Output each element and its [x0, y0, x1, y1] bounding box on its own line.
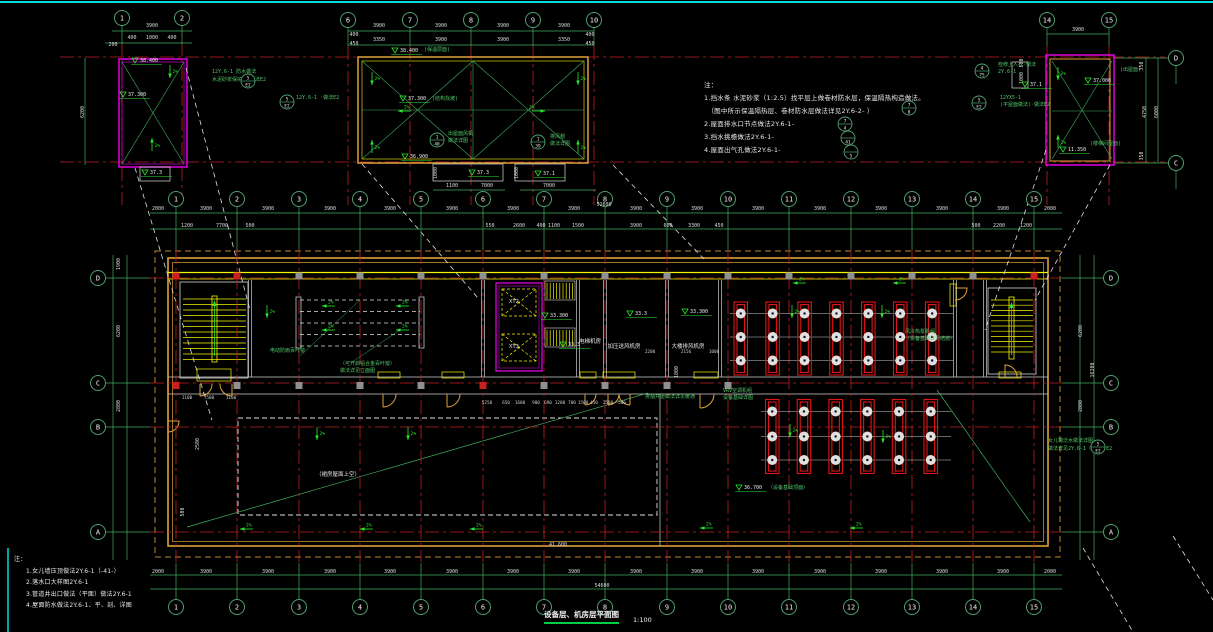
cad-text: 700	[568, 400, 576, 406]
cad-text: 3900	[200, 569, 212, 575]
detail-leader-bubble: 5E2	[972, 96, 986, 111]
cad-text: 5	[247, 76, 250, 82]
cad-text: 2%	[795, 309, 801, 315]
cad-text: 3	[297, 604, 301, 612]
cad-text: 3900	[324, 206, 336, 212]
cad-text: 2%	[411, 431, 417, 437]
slope-arrow: 2%	[790, 305, 800, 318]
slope-arrow: 2%	[396, 300, 409, 308]
note-line: 4.屋面出气孔做法2Y.6-1-	[704, 144, 925, 157]
slope-arrow: 2%	[370, 72, 380, 85]
note-line: 1.女儿墙压顶做法2Y.6-1（-41-）	[26, 566, 132, 578]
cad-text: 7000	[481, 183, 493, 189]
cad-text: E2	[1095, 449, 1101, 455]
level-triangle-icon	[736, 485, 742, 490]
column	[480, 273, 487, 280]
cad-text: 2000	[1044, 569, 1056, 575]
column	[173, 273, 180, 280]
cad-text: 2%	[799, 277, 805, 283]
cad-text: 600	[663, 223, 672, 229]
cad-text: 3900	[936, 206, 948, 212]
annotation-texts: 2000390039003900390039003900390039003900…	[80, 23, 1160, 589]
slope-arrow: 2%	[881, 430, 891, 443]
cad-text: 11	[785, 196, 793, 204]
cad-text: 37.300	[128, 92, 146, 98]
column	[357, 273, 364, 280]
cad-text: 2%	[856, 522, 862, 528]
slope-arrow: 2%	[315, 427, 325, 440]
cad-text: 1000	[514, 167, 520, 179]
cad-text: 5	[419, 196, 423, 204]
level-markers: 38.40037.30037.338.40037.30036.90037.337…	[119, 48, 1115, 492]
stair-right	[988, 288, 1036, 374]
cad-text: 3900	[497, 37, 509, 43]
door	[700, 394, 714, 408]
slope-arrow: 2%	[370, 140, 380, 153]
cad-text: 风冷热泵机组	[905, 328, 935, 335]
cad-text: XT2	[509, 299, 519, 305]
cad-text: 7	[542, 196, 546, 204]
cad-text: 7000	[543, 183, 555, 189]
cad-text: 电动防雨百叶窗	[270, 347, 305, 354]
cad-text: 1	[174, 604, 178, 612]
cad-text: 3300	[688, 223, 700, 229]
cad-text: D	[96, 275, 100, 283]
door	[383, 394, 396, 407]
level-triangle-icon	[120, 92, 126, 97]
column	[848, 273, 855, 280]
cad-text: E2	[976, 105, 982, 111]
cad-text: 3900	[1072, 27, 1084, 33]
slope-arrow: 2%	[1056, 67, 1066, 80]
cad-text: 2%	[375, 145, 381, 151]
cad-text: 4	[358, 196, 362, 204]
cad-text: 37.000	[1093, 78, 1111, 84]
cad-text: 500	[971, 223, 980, 229]
detail-leader-bubble: 5E2	[1091, 440, 1105, 455]
door	[447, 394, 460, 407]
drawing-title-block: 设备层、机房层平面图 1:100	[544, 609, 652, 624]
cad-text: 3900	[262, 206, 274, 212]
cad-text: 1200	[181, 223, 193, 229]
cad-text: 350	[1139, 151, 1145, 160]
cad-text: 15	[1105, 17, 1113, 25]
cad-text: 6200	[80, 106, 86, 118]
cad-text: 3900	[373, 23, 385, 29]
cad-text: 3900	[691, 206, 703, 212]
cad-text: 1	[174, 196, 178, 204]
cad-text: 51600	[596, 202, 611, 208]
cad-text: 7500	[204, 395, 215, 401]
slope-arrow: 2%	[360, 523, 373, 531]
cad-text: XT3	[509, 344, 519, 350]
level-triangle-icon	[400, 96, 406, 101]
cad-text: 3900	[630, 223, 642, 229]
column	[664, 273, 671, 280]
cad-text: 设备基础详图	[723, 394, 753, 401]
cad-text: 37.3	[477, 170, 489, 176]
cad-text: 4750	[1142, 106, 1148, 118]
dimension-lines	[85, 31, 1168, 589]
slope-arrow: 2%	[168, 65, 178, 78]
cad-text: 2%	[886, 434, 892, 440]
cad-text: 6	[481, 196, 485, 204]
cad-text: (出屋面)	[1120, 66, 1141, 73]
cad-text: 5	[419, 604, 423, 612]
cad-text: 400	[349, 32, 358, 38]
column	[970, 273, 977, 280]
detail-leader-bubble: 5E2	[280, 95, 294, 110]
slope-arrow: 2%	[576, 140, 586, 153]
column	[909, 273, 916, 280]
cad-text: 12	[847, 196, 855, 204]
door	[168, 421, 179, 432]
detail-mid-roof	[358, 57, 588, 181]
cad-text: 11	[785, 604, 793, 612]
level-triangle-icon	[542, 313, 548, 318]
cad-text: 2%	[899, 277, 905, 283]
cad-text: 2000	[152, 569, 164, 575]
column	[173, 382, 180, 389]
cad-text: 3900	[568, 569, 580, 575]
cad-text: 2%	[320, 431, 326, 437]
cad-text: 450	[714, 223, 723, 229]
cad-text: 2%	[402, 300, 408, 306]
cad-text: （裙房屋面上空）	[316, 470, 360, 478]
cad-text: 2%	[1061, 140, 1067, 146]
column	[664, 382, 671, 389]
cad-text: 15	[1030, 604, 1038, 612]
cad-text: 2%	[581, 145, 587, 151]
cad-text: 1	[537, 137, 540, 143]
cad-text: 16200	[1090, 362, 1096, 377]
cad-text: 7	[408, 17, 412, 25]
slope-arrow: 2%	[880, 305, 890, 318]
cad-text: 3900	[630, 206, 642, 212]
cad-text: 37.1	[543, 171, 555, 177]
cad-text: 41.600	[549, 542, 567, 548]
cad-text: E2	[245, 83, 251, 89]
slope-arrow: 2%	[396, 324, 409, 332]
cad-text: 1800	[674, 366, 680, 378]
column	[418, 382, 425, 389]
cad-text: （可开启铝合金百叶窗）	[340, 360, 395, 367]
slope-arrow: 2%	[406, 427, 416, 440]
cad-text: 500	[245, 223, 254, 229]
cad-text: 2%	[793, 428, 799, 434]
drawing-scale: 1:100	[633, 616, 652, 624]
cad-text: 3900	[630, 569, 642, 575]
column	[602, 382, 609, 389]
cad-text: 400	[167, 35, 176, 41]
cad-text: 2%	[328, 324, 334, 330]
column	[357, 382, 364, 389]
cad-text: 690	[544, 400, 552, 406]
column	[480, 382, 487, 389]
cad-text: 33.300	[550, 313, 568, 319]
cad-text: 200	[108, 42, 117, 48]
cad-text: 3900	[691, 569, 703, 575]
column	[296, 273, 303, 280]
cad-text: 500	[180, 507, 186, 516]
cad-text: 1600	[515, 400, 526, 406]
cad-text: 3900	[446, 569, 458, 575]
slope-arrow: 2%	[265, 305, 275, 318]
detail-leader-bubble: 5E2	[241, 74, 255, 89]
cad-text: 9	[665, 604, 669, 612]
cad-text: 3900	[446, 206, 458, 212]
column	[725, 273, 732, 280]
cad-text: 450	[349, 41, 358, 47]
door	[1005, 365, 1017, 377]
slope-arrow: 2%	[322, 324, 335, 332]
slope-arrow: 2%	[700, 522, 713, 530]
level-triangle-icon	[535, 171, 541, 176]
cad-text: B	[96, 424, 100, 432]
cad-text: 2%	[366, 523, 372, 529]
notes-head: 注：	[14, 554, 132, 566]
cad-text: 3	[297, 196, 301, 204]
cad-text: 3900	[435, 23, 447, 29]
cad-text: 6000	[1154, 106, 1160, 118]
cad-text: 3900	[507, 206, 519, 212]
cad-text: 3900	[262, 569, 274, 575]
cad-text: 2%	[173, 69, 179, 75]
cad-text: 6	[481, 604, 485, 612]
cad-text: 36.900	[410, 154, 428, 160]
cad-text: 2%	[328, 300, 334, 306]
cad-text: 2%	[581, 76, 587, 82]
interior-partitions	[249, 280, 987, 546]
cad-text: 3900	[814, 569, 826, 575]
note-line: （图中所示保温隔热层、卷材防水层做法详见2Y.6-2- ）	[704, 105, 925, 118]
cad-text: 9	[531, 17, 535, 25]
floor-plan-drawing: 1122334455667788991010111112121313141415…	[0, 0, 1213, 632]
cad-text: 做法详图	[448, 137, 468, 144]
cad-text: 排烟井道做法详见暖通	[645, 393, 695, 400]
cad-text: 2%	[402, 324, 408, 330]
cad-text: 37.1	[1030, 82, 1042, 88]
cad-text: 3900	[384, 569, 396, 575]
cad-text: 75	[979, 73, 985, 79]
cad-text: 大楼排风机房	[671, 342, 705, 350]
cad-text: 2600	[513, 223, 525, 229]
cad-text: 37.3	[150, 170, 162, 176]
cad-text: 6200	[116, 325, 122, 337]
slope-arrow: 2%	[470, 523, 483, 531]
cad-text: 2500	[603, 400, 614, 406]
column	[418, 273, 425, 280]
cad-text: 3900	[997, 569, 1009, 575]
cad-text: 做法详见立面图	[340, 367, 375, 374]
cad-text: 33.3	[568, 342, 580, 348]
slope-arrow: 2%	[240, 523, 253, 531]
cad-text: 7700	[216, 223, 228, 229]
note-line: 4.屋面防水做法2Y.6-1、平、剖、详图	[26, 600, 132, 612]
cad-text: E2	[284, 104, 290, 110]
equipment-units	[730, 302, 953, 474]
cad-text: 2000	[1044, 206, 1056, 212]
stair-left	[180, 282, 248, 381]
cad-text: 2	[235, 604, 239, 612]
note-line: 3.挡水挑檐做法2Y.6-1-	[704, 131, 925, 144]
cad-text: 450	[590, 400, 598, 406]
cad-text: 3900	[507, 569, 519, 575]
column	[541, 273, 548, 280]
cad-text: 2500	[195, 438, 201, 450]
cad-text: 400	[536, 223, 545, 229]
column	[234, 382, 241, 389]
column	[602, 273, 609, 280]
cad-text: 900	[532, 400, 540, 406]
cad-text: 1900	[116, 258, 122, 270]
cad-text: 3900	[324, 569, 336, 575]
cad-canvas: 1122334455667788991010111112121313141415…	[0, 0, 1213, 632]
cad-text: 做法详图	[550, 140, 570, 147]
cad-text: 6	[346, 17, 350, 25]
cad-text: 14	[969, 604, 977, 612]
cad-text: 39	[535, 144, 541, 150]
cad-text: 38.400	[400, 48, 418, 54]
slope-arrow: 2%	[150, 138, 160, 151]
cad-text: 2%	[404, 105, 410, 111]
cad-text: C	[1109, 380, 1113, 388]
cad-text: 2200	[645, 349, 656, 355]
slope-arrow: 2%	[529, 105, 545, 113]
cad-text: 500	[618, 400, 626, 406]
cad-text: 1500	[578, 400, 589, 406]
equipment-unit	[829, 400, 843, 474]
cad-text: 出屋面风机	[448, 130, 473, 137]
cad-text: D	[1174, 55, 1178, 63]
cad-text: 3900	[936, 569, 948, 575]
cad-text: 2%	[155, 143, 161, 149]
column	[1031, 273, 1038, 280]
cad-text: 2%	[375, 76, 381, 82]
cad-text: 女儿墙泛水做法详图	[1048, 437, 1093, 444]
cad-text: 加压送风机房	[607, 342, 641, 350]
cad-text: 2	[180, 15, 184, 23]
level-triangle-icon	[402, 154, 408, 159]
detail-leader-bubble: 140	[430, 133, 444, 148]
cad-text: 3900	[497, 23, 509, 29]
cad-text: 14	[1043, 17, 1051, 25]
cad-text: 1	[436, 135, 439, 141]
cad-text: 电梯机房	[579, 337, 602, 345]
cad-text: 2%	[476, 523, 482, 529]
cad-text: 3900	[558, 23, 570, 29]
level-triangle-icon	[469, 170, 475, 175]
cad-text: 36.700	[744, 485, 762, 491]
parapet-notes: 注： 1.女儿墙压顶做法2Y.6-1（-41-） 2.落水口大样图2Y.6-1 …	[14, 554, 132, 612]
cad-text: （设备基础顶面）	[768, 484, 808, 491]
cad-text: 33.3	[635, 311, 647, 317]
cad-text: 13	[908, 604, 916, 612]
cad-text: 1000	[433, 167, 439, 179]
cad-text: 3900	[997, 206, 1009, 212]
cad-text: 1200	[555, 400, 566, 406]
cad-text: 12	[847, 604, 855, 612]
column	[786, 273, 793, 280]
cad-text: 3900	[200, 206, 212, 212]
cad-text: 37.300	[408, 96, 426, 102]
equipment-unit	[924, 400, 938, 474]
cad-text: 1200	[1020, 223, 1032, 229]
cad-text: 10	[724, 196, 732, 204]
cad-text: 13	[908, 196, 916, 204]
detail-leader-bubble: 139	[531, 135, 545, 150]
cad-text: C	[1174, 160, 1178, 168]
cad-text: 2%	[270, 309, 276, 315]
column	[296, 382, 303, 389]
cad-text: 3350	[373, 37, 385, 43]
cad-text: 2%	[1061, 71, 1067, 77]
cad-text: 1100	[182, 395, 193, 401]
cad-text: 40	[434, 142, 440, 148]
cad-text: （设备基础详见结施）	[905, 335, 955, 342]
cad-text: 检修上人孔·做法	[998, 61, 1036, 68]
roof-notes: 注： 1.挡水条 水泥砂浆（1:2.5）找平层上做卷材防水层，保温隔热构造做法。…	[704, 79, 925, 157]
cad-text: VRV空调机组	[723, 387, 752, 394]
cad-text: 1000	[146, 35, 158, 41]
equipment-unit	[734, 302, 748, 375]
cad-text: B	[1109, 424, 1113, 432]
cad-text: 2%	[885, 309, 891, 315]
cad-text: 3900	[384, 206, 396, 212]
cad-text: 2%	[246, 523, 252, 529]
cad-text: 4	[981, 66, 984, 72]
cad-text: 12YX5-1	[1000, 95, 1021, 101]
cad-text: 2Y.6-1	[998, 69, 1016, 75]
cad-text: 650	[502, 400, 510, 406]
cad-text: 4	[358, 604, 362, 612]
drawing-title: 设备层、机房层平面图	[544, 609, 619, 624]
cad-text: 5	[978, 98, 981, 104]
cad-text: 1	[120, 15, 124, 23]
cad-text: 2800	[116, 400, 122, 412]
cad-text: 5	[286, 97, 289, 103]
note-line: 2.屋面排水口节点做法2Y.6-1-	[704, 118, 925, 131]
level-triangle-icon	[142, 170, 148, 175]
equipment-unit	[766, 400, 780, 474]
cad-text: 2000	[152, 206, 164, 212]
cad-text: 1100	[548, 223, 560, 229]
cad-text: 3900	[752, 206, 764, 212]
column	[541, 382, 548, 389]
cad-text: 3900	[875, 206, 887, 212]
note-line: 1.挡水条 水泥砂浆（1:2.5）找平层上做卷材防水层，保温隔热构造做法。	[704, 92, 925, 105]
cad-text: 水泥砂浆保护层·做法E2	[212, 76, 266, 83]
cad-text: 5	[1097, 442, 1100, 448]
cad-text: 11.350	[1068, 147, 1086, 153]
cad-text: 1500	[572, 223, 584, 229]
cad-text: 2%	[529, 105, 535, 111]
cad-text: 2	[235, 196, 239, 204]
level-triangle-icon	[1085, 78, 1091, 83]
cad-text: 8	[469, 17, 473, 25]
cad-text: 54600	[594, 583, 609, 589]
level-triangle-icon	[627, 311, 633, 316]
cad-text: 3900	[568, 206, 580, 212]
cad-text: 3900	[146, 23, 158, 29]
slope-arrow: 2%	[576, 72, 586, 85]
cad-text: 14	[969, 196, 977, 204]
cad-text: 3900	[752, 569, 764, 575]
cad-text: 排风帽	[550, 133, 565, 140]
cad-text: 38.400	[140, 58, 158, 64]
equipment-unit	[892, 400, 906, 474]
notes-head: 注：	[704, 79, 925, 92]
